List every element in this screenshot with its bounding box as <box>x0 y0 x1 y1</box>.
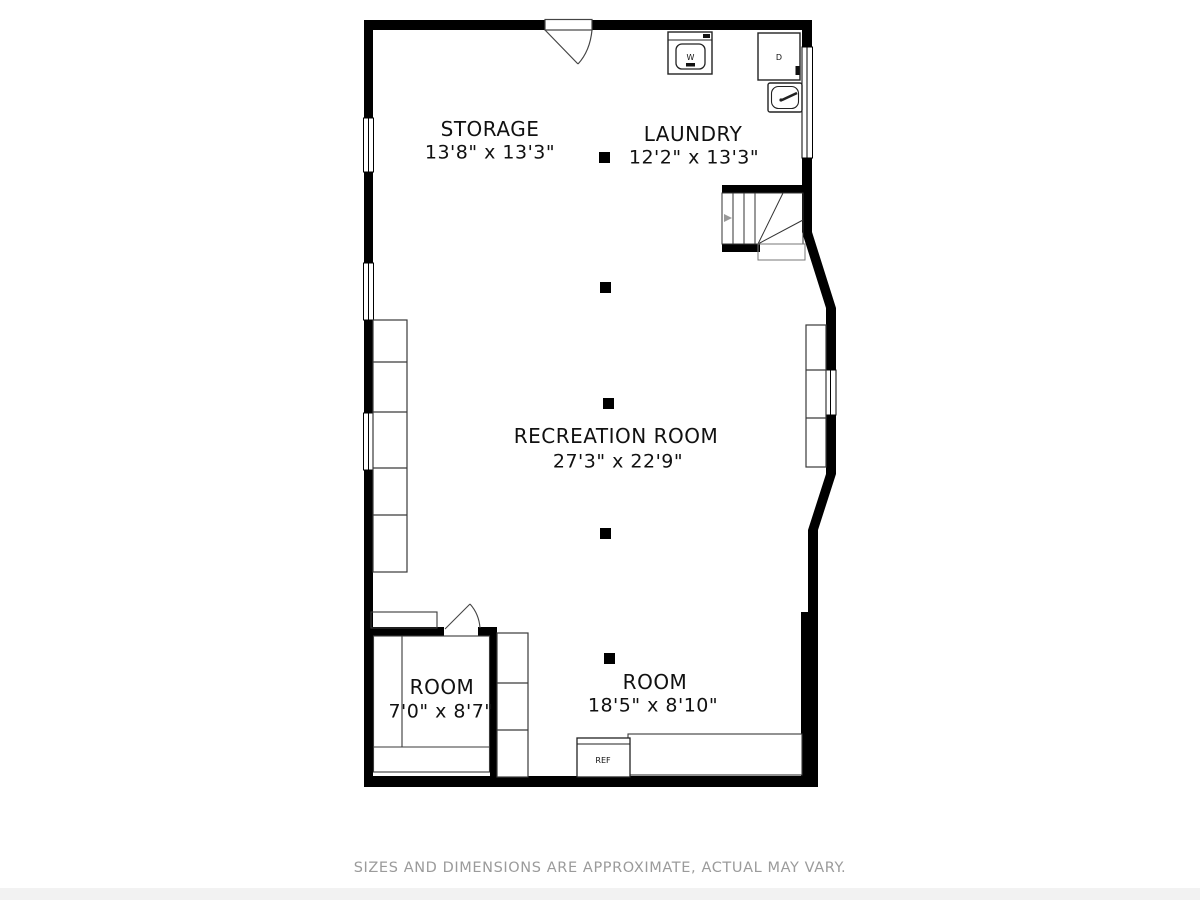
drain-icon <box>779 98 782 101</box>
sink <box>768 83 802 112</box>
refrigerator: REF <box>577 738 630 777</box>
floor-plan-page: REF W D <box>0 0 1200 900</box>
small-room-dimensions: 7'0" x 8'7" <box>388 702 493 723</box>
small-room-name: ROOM <box>410 676 475 698</box>
bottom-edge-strip <box>0 888 1200 900</box>
top-wall-right-segment <box>592 20 812 30</box>
stair-winder-line <box>758 220 803 244</box>
entry-door-opening <box>545 20 592 31</box>
window-left-2 <box>364 263 374 320</box>
support-posts <box>599 152 615 664</box>
top-wall-left-segment <box>364 20 545 30</box>
washer-door-icon <box>686 63 695 67</box>
shelving-left <box>373 320 407 572</box>
storage-room-dimensions: 13'8" x 13'3" <box>425 143 555 164</box>
stairs-treads-box <box>722 193 803 244</box>
support-post <box>600 282 611 293</box>
outer-walls <box>364 20 836 787</box>
laundry-room-name: LAUNDRY <box>644 123 743 145</box>
entry-door-leaf <box>545 30 578 64</box>
recreation-room-name: RECREATION ROOM <box>514 425 718 447</box>
stairs-bottom-wall <box>722 244 760 252</box>
dryer: D <box>758 33 800 80</box>
washer: W <box>668 32 712 74</box>
refrigerator-label: REF <box>595 756 611 765</box>
closet-shelves <box>497 633 528 777</box>
entry-door-swing-arc <box>578 30 592 64</box>
window-right-1 <box>802 47 813 158</box>
shelving-right <box>806 325 826 467</box>
storage-room-name: STORAGE <box>441 118 540 140</box>
dryer-vent-icon <box>796 66 800 75</box>
window-left-1 <box>364 118 374 172</box>
bottom-wall <box>364 776 818 787</box>
window-right-2 <box>826 370 837 415</box>
stair-winder-line <box>758 193 783 244</box>
recreation-room-dimensions: 27'3" x 22'9" <box>553 452 683 473</box>
support-post <box>599 152 610 163</box>
stairs-top-wall <box>722 185 812 193</box>
large-room-dimensions: 18'5" x 8'10" <box>588 696 718 717</box>
laundry-room-dimensions: 12'2" x 13'3" <box>629 148 759 169</box>
small-room-door-opening <box>444 621 478 635</box>
support-post <box>604 653 615 664</box>
support-post <box>600 528 611 539</box>
washer-control-icon <box>703 34 710 38</box>
support-post <box>603 398 614 409</box>
stairs-landing <box>758 244 805 260</box>
dryer-label: D <box>776 53 782 62</box>
entry-door <box>545 20 592 65</box>
bottom-counter <box>628 734 802 775</box>
washer-label: W <box>687 53 695 62</box>
window-left-3 <box>364 413 374 470</box>
counter-above-small-room <box>371 612 437 628</box>
large-room-name: ROOM <box>623 671 688 693</box>
windows <box>364 47 837 470</box>
stairs-direction-arrow-icon <box>724 214 732 222</box>
disclaimer-text: SIZES AND DIMENSIONS ARE APPROXIMATE, AC… <box>354 860 847 876</box>
